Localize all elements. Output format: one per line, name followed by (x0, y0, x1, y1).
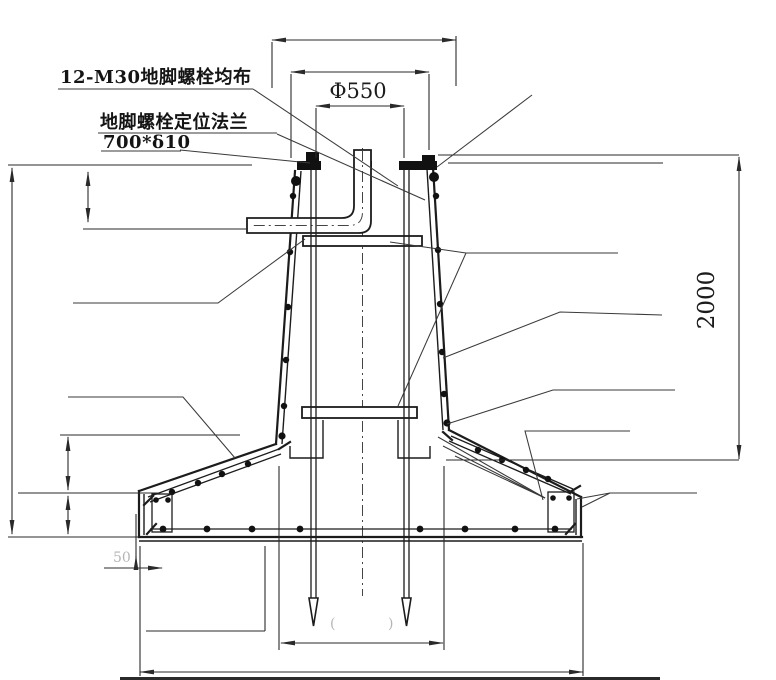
dim-depth-2000: 2000 (694, 271, 720, 330)
label-anchor-bolts: 12-M30地脚螺栓均布 (60, 66, 252, 88)
label-positioning-flange: 地脚螺栓定位法兰 (100, 111, 248, 133)
foundation-section-svg: 12-M30地脚螺栓均布 地脚螺栓定位法兰 700*δ10 Φ550 2000 … (0, 0, 776, 680)
label-flange-spec: 700*δ10 (103, 132, 191, 153)
dim-hidden-open: ( (330, 616, 335, 632)
annotations: 12-M30地脚螺栓均布 地脚螺栓定位法兰 700*δ10 Φ550 2000 … (58, 66, 720, 632)
dim-offset-50: 50 (113, 550, 131, 566)
dim-hidden-close: ) (388, 616, 393, 632)
dim-bolt-circle: Φ550 (329, 79, 386, 103)
lower-extension-lines (140, 466, 583, 676)
drawing-canvas: 12-M30地脚螺栓均布 地脚螺栓定位法兰 700*δ10 Φ550 2000 … (0, 0, 776, 680)
